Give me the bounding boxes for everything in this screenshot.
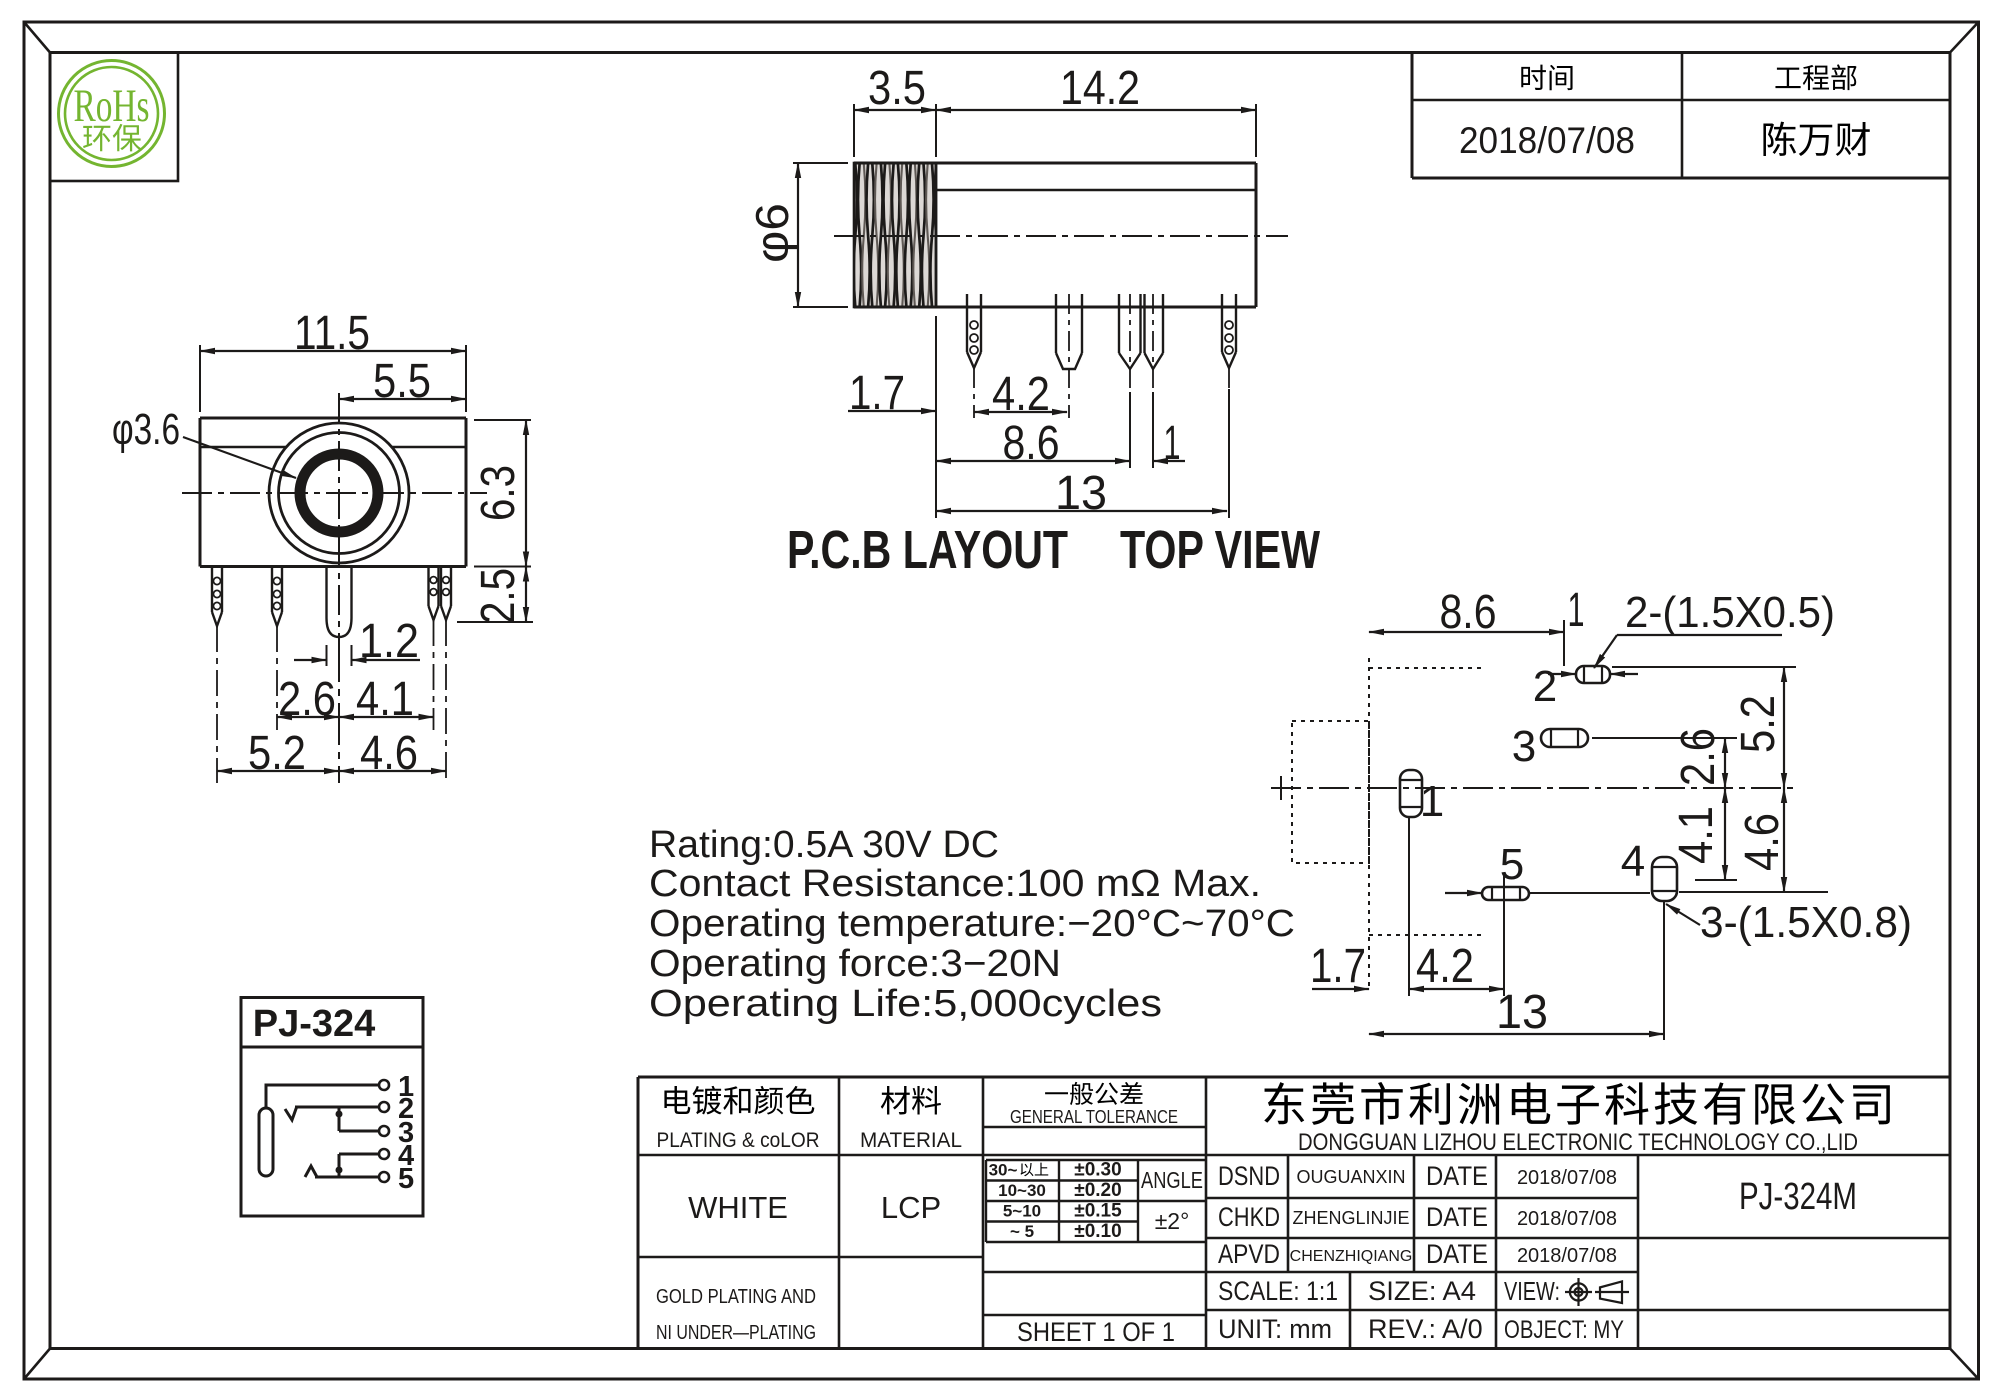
svg-text:SIZE: A4: SIZE: A4 (1368, 1276, 1476, 1306)
svg-text:PLATING & coLOR: PLATING & coLOR (657, 1129, 820, 1152)
svg-text:8.6: 8.6 (1003, 417, 1060, 470)
svg-text:Rating:0.5A 30V DC: Rating:0.5A 30V DC (649, 824, 999, 866)
svg-text:LCP: LCP (881, 1190, 941, 1225)
svg-text:SCALE: 1:1: SCALE: 1:1 (1218, 1276, 1338, 1306)
svg-text:DATE: DATE (1426, 1202, 1488, 1232)
svg-text:ZHENGLINJIE: ZHENGLINJIE (1292, 1208, 1409, 1228)
svg-text:DONGGUAN LIZHOU ELECTRONIC TEC: DONGGUAN LIZHOU ELECTRONIC TECHNOLOGY CO… (1298, 1129, 1858, 1156)
svg-text:13: 13 (1055, 467, 1107, 520)
svg-text:5.2: 5.2 (248, 727, 306, 780)
svg-text:4.6: 4.6 (1736, 813, 1789, 871)
svg-text:Contact Resistance:100 mΩ M: Contact Resistance:100 mΩ Max. (649, 863, 1261, 905)
svg-text:ANGLE: ANGLE (1141, 1167, 1203, 1193)
svg-text:5.2: 5.2 (1732, 695, 1785, 753)
svg-text:PJ-324M: PJ-324M (1739, 1176, 1857, 1218)
svg-text:2018/07/08: 2018/07/08 (1459, 120, 1635, 161)
svg-text:TOP VIEW: TOP VIEW (1120, 520, 1320, 580)
svg-text:RoHs: RoHs (74, 80, 150, 132)
svg-text:2018/07/08: 2018/07/08 (1517, 1167, 1617, 1189)
svg-text:1.7: 1.7 (849, 367, 905, 420)
svg-text:P.C.B LAYOUT: P.C.B LAYOUT (787, 520, 1068, 580)
svg-text:UNIT: mm: UNIT: mm (1218, 1314, 1332, 1344)
svg-text:6.3: 6.3 (472, 465, 525, 521)
svg-text:φ6: φ6 (746, 203, 798, 263)
svg-text:VIEW:: VIEW: (1504, 1276, 1560, 1306)
svg-text:1: 1 (1568, 584, 1585, 637)
svg-text:1: 1 (1164, 417, 1181, 470)
svg-text:NI UNDER—PLATING: NI UNDER—PLATING (656, 1322, 816, 1344)
svg-text:OBJECT: MY: OBJECT: MY (1504, 1316, 1624, 1344)
svg-text:14.2: 14.2 (1060, 62, 1140, 115)
svg-text:WHITE: WHITE (688, 1190, 788, 1225)
svg-text:DATE: DATE (1426, 1161, 1488, 1191)
svg-text:2.6: 2.6 (278, 673, 336, 726)
svg-text:±2°: ±2° (1155, 1208, 1190, 1234)
svg-text:2: 2 (1533, 662, 1557, 711)
svg-text:GOLD PLATING AND: GOLD PLATING AND (656, 1286, 816, 1308)
svg-text:30~: 30~ (989, 1161, 1018, 1180)
svg-text:4.2: 4.2 (992, 368, 1050, 421)
svg-text:1.7: 1.7 (1310, 940, 1366, 993)
svg-text:Operating Life:5,000cycles: Operating Life:5,000cycles (649, 983, 1162, 1025)
svg-text:2.5: 2.5 (472, 568, 525, 624)
svg-text:DATE: DATE (1426, 1239, 1488, 1269)
svg-text:5: 5 (398, 1163, 414, 1195)
svg-text:GENERAL TOLERANCE: GENERAL TOLERANCE (1010, 1107, 1178, 1127)
svg-text:±0.30: ±0.30 (1074, 1160, 1121, 1181)
svg-text:10~30: 10~30 (998, 1181, 1046, 1200)
svg-text:CHKD: CHKD (1218, 1202, 1280, 1232)
svg-text:APVD: APVD (1218, 1239, 1280, 1269)
svg-text:1.2: 1.2 (359, 615, 419, 668)
svg-text:Operating force:3−20N: Operating force:3−20N (649, 943, 1061, 985)
svg-text:±0.20: ±0.20 (1074, 1180, 1121, 1201)
svg-text:1: 1 (1420, 777, 1444, 826)
svg-text:11.5: 11.5 (294, 307, 370, 360)
svg-text:4: 4 (1621, 837, 1645, 886)
svg-text:4.2: 4.2 (1416, 940, 1474, 993)
svg-text:2018/07/08: 2018/07/08 (1517, 1208, 1617, 1230)
svg-text:4.1: 4.1 (356, 673, 414, 726)
svg-text:PJ-324: PJ-324 (253, 1003, 376, 1045)
svg-text:5.5: 5.5 (373, 355, 431, 408)
svg-text:2018/07/08: 2018/07/08 (1517, 1245, 1617, 1267)
svg-text:±0.10: ±0.10 (1074, 1221, 1121, 1242)
svg-text:SHEET 1 OF 1: SHEET 1 OF 1 (1017, 1317, 1175, 1347)
svg-text:CHENZHIQIANG: CHENZHIQIANG (1290, 1248, 1413, 1265)
svg-text:REV.: A/0: REV.: A/0 (1368, 1314, 1483, 1344)
svg-text:4.1: 4.1 (1670, 806, 1723, 864)
svg-text:φ3.6: φ3.6 (112, 405, 180, 454)
svg-text:DSND: DSND (1218, 1161, 1280, 1191)
svg-text:4.6: 4.6 (360, 727, 418, 780)
svg-text:MATERIAL: MATERIAL (860, 1129, 962, 1152)
svg-text:3: 3 (1512, 722, 1536, 771)
svg-text:5~10: 5~10 (1003, 1202, 1041, 1221)
svg-text:~ 5: ~ 5 (1010, 1222, 1034, 1241)
svg-text:8.6: 8.6 (1440, 586, 1497, 639)
svg-text:3.5: 3.5 (868, 62, 926, 115)
svg-text:13: 13 (1496, 986, 1548, 1039)
svg-text:±0.15: ±0.15 (1074, 1201, 1122, 1222)
svg-text:3-(1.5X0.8): 3-(1.5X0.8) (1700, 898, 1912, 947)
svg-text:OUGUANXIN: OUGUANXIN (1296, 1167, 1405, 1187)
svg-text:2.6: 2.6 (1672, 728, 1725, 786)
svg-text:2-(1.5X0.5): 2-(1.5X0.5) (1625, 588, 1835, 637)
svg-text:Operating temperature:−20°C~7: Operating temperature:−20°C~70°C (649, 903, 1295, 945)
